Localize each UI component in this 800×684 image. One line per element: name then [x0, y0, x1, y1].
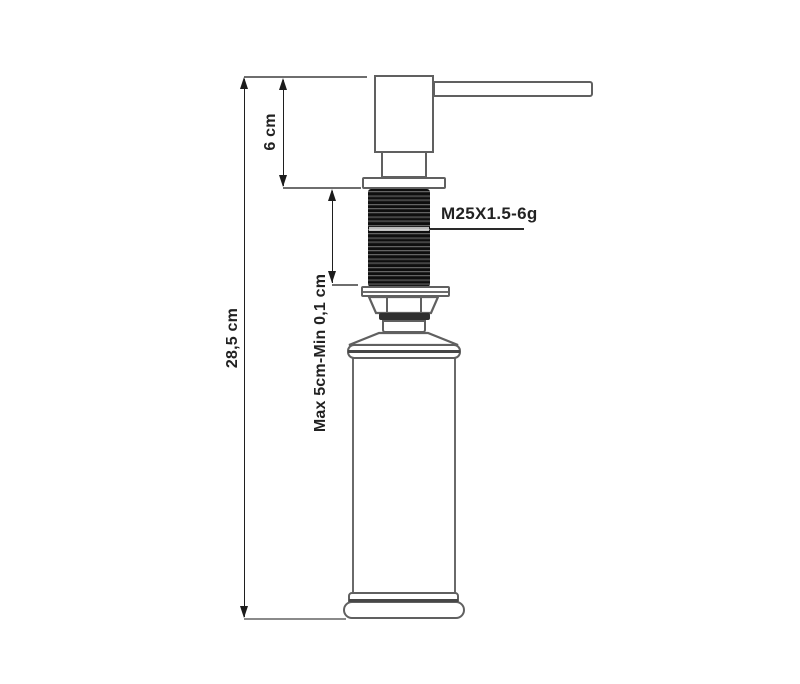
seal-ring	[379, 313, 430, 320]
head-height-label: 6 cm	[262, 113, 280, 150]
mount-range-dimension-line	[332, 191, 334, 283]
bead-seam-line	[348, 350, 460, 353]
total-height-dimension-line	[244, 79, 246, 617]
soap-dispenser-technical-drawing: 28,5 cm 6 cm Max 5cm-Min 0,1 cm M25X1.5-…	[0, 0, 800, 684]
pump-spout	[433, 81, 593, 97]
washer-inner-line	[363, 291, 448, 293]
washer-extension-line	[332, 284, 358, 286]
mounting-flange	[362, 177, 446, 189]
mounting-nut	[365, 295, 443, 315]
total-height-arrow-down-icon	[240, 606, 248, 618]
thread-highlight-band	[369, 227, 429, 231]
top-extension-line	[244, 76, 367, 78]
total-height-label: 28,5 cm	[224, 308, 242, 368]
bottle-body	[352, 357, 456, 594]
mount-range-arrow-up-icon	[328, 189, 336, 201]
pump-head	[374, 75, 434, 153]
mount-range-label: Max 5cm-Min 0,1 cm	[312, 274, 330, 432]
threaded-shaft	[368, 189, 430, 287]
thread-spec-label: M25X1.5-6g	[441, 204, 538, 224]
total-height-arrow-up-icon	[240, 77, 248, 89]
pump-neck	[381, 150, 427, 178]
head-bottom-extension-line	[283, 187, 361, 189]
head-height-dimension-line	[283, 80, 285, 186]
bottom-extension-line	[244, 618, 346, 620]
bottle-base-cap	[343, 601, 465, 619]
head-height-arrow-up-icon	[279, 78, 287, 90]
head-height-arrow-down-icon	[279, 175, 287, 187]
base-seam-line	[349, 599, 458, 602]
